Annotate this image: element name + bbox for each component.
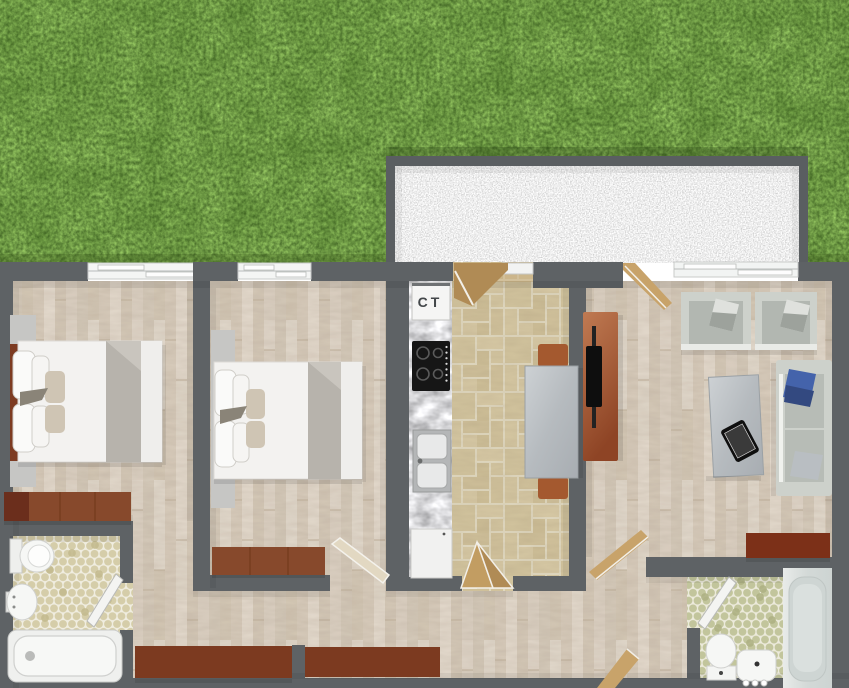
svg-text:CT: CT — [418, 294, 443, 310]
